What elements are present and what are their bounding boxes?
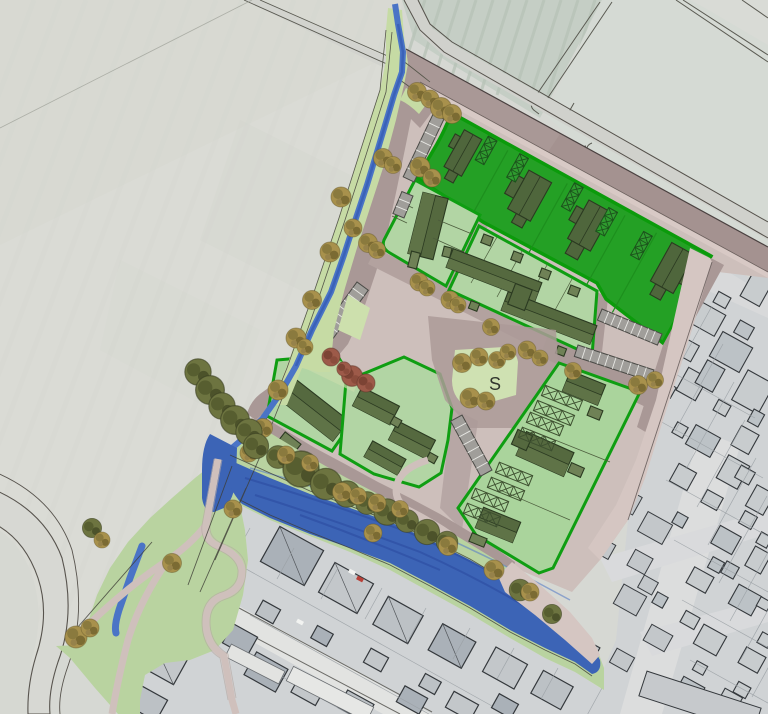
svg-text:S: S xyxy=(489,374,501,394)
